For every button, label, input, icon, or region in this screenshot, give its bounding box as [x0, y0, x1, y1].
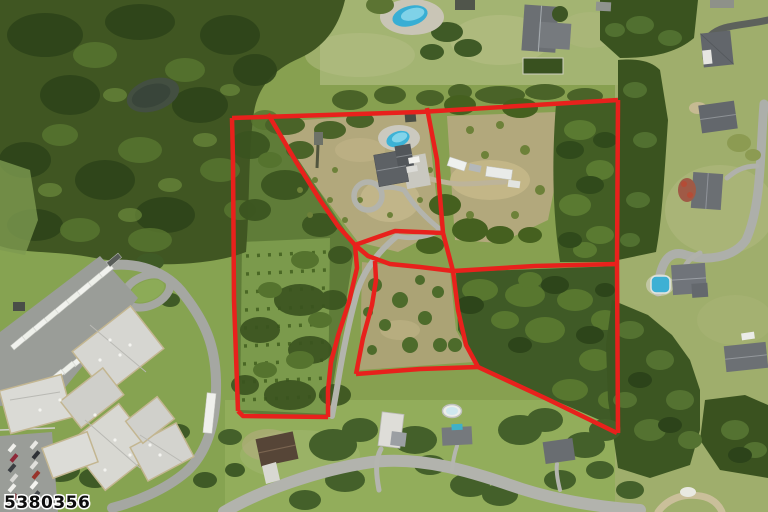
neighbor-house-ne: [700, 31, 733, 68]
neighbor-house-s4: [543, 438, 576, 464]
aerial-photo-canvas: 5380356: [0, 0, 768, 512]
garden-plot: [523, 58, 563, 74]
aerial-listing-photo: 5380356: [0, 0, 768, 512]
pool-shed: [405, 113, 417, 122]
outbuilding-shadow: [317, 145, 318, 168]
neighbor-pool-e3: [651, 276, 670, 293]
neighbor-house-e3: [671, 263, 708, 299]
photo-id-watermark: 5380356: [4, 493, 90, 512]
neighbor-house-e1: [698, 101, 738, 134]
small-outbuilding: [314, 132, 323, 145]
neighbor-house-e4: [724, 342, 768, 372]
right-edge: [617, 100, 618, 433]
